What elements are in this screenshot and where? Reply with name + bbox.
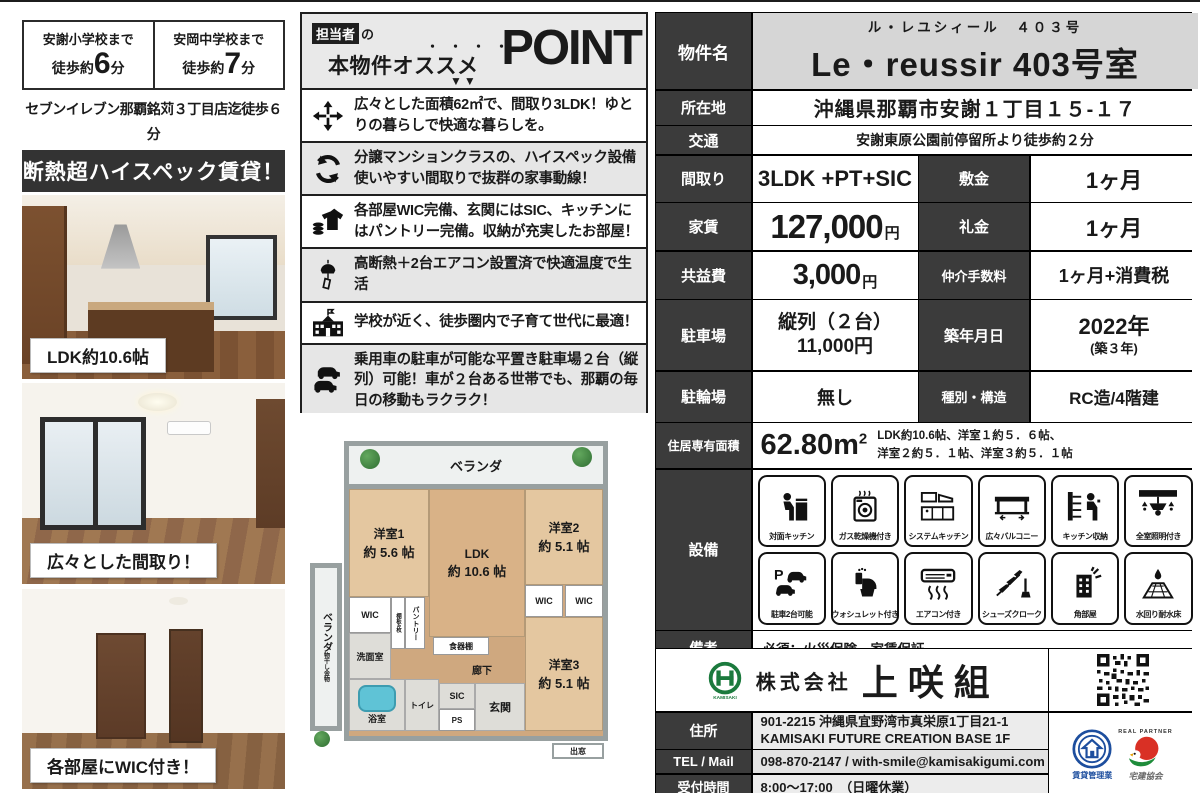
location-value: 沖縄県那覇市安謝１丁目１５-１７	[753, 91, 1198, 125]
rental-management-badge: 賃貸管理業	[1072, 729, 1112, 781]
row-label-common-fee: 共益費	[656, 252, 751, 299]
walk-suffix: 分	[241, 60, 255, 76]
school-name: 安謝小学校まで	[24, 29, 153, 48]
point-item: 乗用車の駐車が可能な平置き駐車場２台（縦列）可能！車が２台ある世帯でも、那覇の毎…	[302, 343, 646, 417]
floorplan-entrance: 玄関	[475, 683, 525, 731]
photo-caption: 各部屋にWIC付き！	[30, 748, 216, 783]
parking-two-icon: P	[773, 558, 811, 609]
deposit-value: 1ヶ月	[1031, 156, 1198, 202]
down-arrows-icon: ▼▼	[450, 74, 478, 88]
property-name-kana: ル・レユシィール ４０３号	[868, 16, 1083, 36]
walk-minutes: 6	[94, 47, 111, 80]
point-item: 分譲マンションクラスの、ハイスペック設備使いやすい間取りで抜群の家事動線！	[302, 141, 646, 194]
company-name-cell: KAMISAKI 株式会社 上咲組	[656, 649, 1048, 711]
balcony-icon	[993, 481, 1031, 532]
equipment-tile: ウォシュレット付き	[831, 552, 899, 625]
floorplan-veranda-top: ベランダ	[344, 441, 608, 489]
kitchen-storage-icon	[1066, 481, 1104, 532]
photo-ldk-kitchen: LDK約10.6帖	[22, 195, 285, 379]
area-room-breakdown: LDK約10.6帖、洋室１約５．６帖、洋室２約５．１帖、洋室３約５．１帖	[877, 428, 1073, 463]
plant-icon	[572, 447, 592, 467]
recommend-points-box: 担当者の ・・・・ 本物件オススメ POINT ▼▼ 広々とした面積62㎡で、間…	[300, 12, 648, 418]
floorplan-interior: 洋室1 約 5.6 帖 LDK 約 10.6 帖 洋室2 約 5.1 帖 WIC…	[344, 489, 608, 741]
corner-room-icon	[1066, 558, 1104, 609]
photo-living-room: 広々とした間取り！	[22, 383, 285, 584]
common-fee-amount: 3,000	[793, 259, 861, 292]
rent-unit: 円	[885, 222, 900, 243]
laundry-fitting-label: 物干し金物	[322, 652, 331, 682]
equipment-tile: キッチン収納	[1051, 475, 1119, 548]
point-text: 学校が近く、徒歩圏内で子育て世代に最適！	[354, 312, 638, 333]
equipment-tile: システムキッチン	[904, 475, 972, 548]
expand-arrows-icon	[309, 100, 347, 132]
rent-amount: 127,000	[770, 208, 882, 246]
row-label-layout: 間取り	[656, 156, 751, 202]
floorplan-room1: 洋室1 約 5.6 帖	[349, 489, 429, 597]
points-header: 担当者の ・・・・ 本物件オススメ POINT ▼▼	[302, 14, 646, 88]
row-label-equipment: 設備	[656, 470, 751, 630]
floorplan-room2: 洋室2 約 5.1 帖	[525, 489, 603, 585]
company-prefix: 株式会社	[756, 666, 852, 695]
floorplan-room3: 洋室3 約 5.1 帖	[525, 617, 603, 731]
equipment-grid: 対面キッチン ガス乾燥機付き システムキッチン 広々バルコニー キッチン収納 全…	[753, 470, 1198, 630]
point-text: 各部屋WIC完備、玄関にはSIC、キッチンにはパントリー完備。収納が充実したお部…	[354, 201, 639, 242]
particle: の	[361, 27, 374, 42]
row-label-parking: 駐車場	[656, 300, 751, 370]
point-item: 学校が近く、徒歩圏内で子育て世代に最適！	[302, 301, 646, 343]
floorplan-bath: 浴室	[349, 679, 405, 731]
company-footer: KAMISAKI 株式会社 上咲組 住所 901-2215 沖縄県宜野湾市真栄原…	[655, 648, 1192, 793]
two-cars-icon	[309, 363, 347, 397]
key-money-value: 1ヶ月	[1031, 203, 1198, 250]
svg-text:P: P	[774, 567, 784, 583]
equipment-tile: 広々バルコニー	[978, 475, 1046, 548]
point-item: 高断熱＋2台エアコン設置済で快適温度で生活	[302, 247, 646, 300]
layout-value: 3LDK +PT+SIC	[753, 156, 918, 202]
walk-minutes: 7	[224, 47, 241, 80]
row-label-property-name: 物件名	[656, 13, 751, 89]
row-label-area: 住居専有面積	[656, 423, 751, 468]
parking-line2: 11,000円	[797, 335, 873, 359]
point-text: 分譲マンションクラスの、ハイスペック設備使いやすい間取りで抜群の家事動線！	[354, 148, 639, 189]
rental-management-icon	[1072, 729, 1112, 769]
row-label-hours: 受付時間	[656, 775, 751, 793]
bicycle-value: 無し	[753, 372, 918, 422]
company-logo: KAMISAKI	[704, 659, 746, 701]
point-text: 広々とした面積62㎡で、間取り3LDK！ゆとりの暮らしで快適な暮らしを。	[354, 95, 639, 136]
company-tel-mail: 098-870-2147 / with-smile@kamisakigumi.c…	[753, 750, 1048, 773]
header-line-a: 本物件	[328, 55, 393, 78]
row-label-location: 所在地	[656, 91, 751, 125]
walk-prefix: 徒歩約	[182, 60, 224, 76]
counter-kitchen-icon	[773, 481, 811, 532]
floorplan-bay-window: 出窓	[552, 743, 604, 759]
equipment-tile: ガス乾燥機付き	[831, 475, 899, 548]
school-access-elementary: 安謝小学校まで 徒歩約6分	[24, 22, 155, 88]
property-name: Le・reussir 403号室	[811, 38, 1139, 86]
cycle-icon	[309, 154, 347, 184]
storage-clothes-icon	[309, 206, 347, 238]
floorplan-ps: PS	[439, 709, 475, 731]
floorplan-wic3: WIC	[565, 585, 603, 617]
company-address: 901-2215 沖縄県宜野湾市真栄原1丁目21-1 KAMISAKI FUTU…	[753, 713, 1048, 749]
row-label-agency-fee: 仲介手数料	[919, 252, 1029, 299]
equipment-tile: エアコン付き	[904, 552, 972, 625]
row-label-key-money: 礼金	[919, 203, 1029, 250]
headline-text: 断熱超ハイスペック賃貸！	[23, 156, 284, 186]
association-badges: 賃貸管理業 REAL PARTNER 宅建協会	[1049, 713, 1196, 793]
school-name: 安岡中学校まで	[155, 29, 284, 48]
floor-plan: ベランダ ベランダ 物干し金物 洋室1 約 5.6 帖 LDK 約 10.6 帖…	[300, 413, 648, 791]
svg-text:KAMISAKI: KAMISAKI	[713, 695, 737, 701]
row-label-rent: 家賃	[656, 203, 751, 250]
qr-cell	[1049, 649, 1196, 711]
area-value-cell: 62.80m2 LDK約10.6帖、洋室１約５．６帖、洋室２約５．１帖、洋室３約…	[753, 423, 1198, 468]
parking-line1: 縦列（２台）	[778, 311, 892, 335]
row-label-built: 築年月日	[919, 300, 1029, 370]
waterproof-floor-icon	[1139, 558, 1177, 609]
point-title: POINT	[501, 17, 641, 81]
store-line: セブンイレブン那覇銘苅３丁目店迄徒歩６分	[22, 97, 285, 146]
walk-suffix: 分	[111, 60, 125, 76]
point-text: 高断熱＋2台エアコン設置済で快適温度で生活	[354, 254, 639, 295]
photo-caption: LDK約10.6帖	[30, 338, 166, 373]
shoe-closet-icon	[993, 558, 1031, 609]
floorplan-toilet: トイレ	[405, 679, 439, 731]
row-label-address: 住所	[656, 713, 751, 749]
aircon-icon	[919, 558, 957, 609]
property-spec-table: 物件名 ル・レユシィール ４０３号 Le・reussir 403号室 所在地 沖…	[655, 12, 1192, 665]
equipment-tile: 水回り耐水床	[1124, 552, 1192, 625]
headline-banner: 断熱超ハイスペック賃貸！	[22, 150, 285, 192]
floorplan-sic: SIC	[439, 683, 475, 709]
top-border-rule	[0, 0, 1200, 2]
walk-prefix: 徒歩約	[52, 60, 94, 76]
floorplan-ldk: LDK 約 10.6 帖	[429, 489, 525, 637]
system-kitchen-icon	[919, 481, 957, 532]
parking-value-cell: 縦列（２台） 11,000円	[753, 300, 918, 370]
floorplan-pantry: パントリー	[405, 597, 425, 649]
equipment-tile: P駐車2台可能	[758, 552, 826, 625]
common-fee-unit: 円	[862, 271, 877, 292]
plant-icon	[314, 731, 330, 747]
school-access-junior-high: 安岡中学校まで 徒歩約7分	[155, 22, 284, 88]
bathtub-icon	[358, 685, 396, 713]
photo-caption: 広々とした間取り！	[30, 543, 217, 578]
floorplan-hall: 廊下	[439, 655, 525, 683]
row-label-structure: 種別・構造	[919, 372, 1029, 422]
washlet-icon	[846, 558, 884, 609]
floorplan-washroom: 洗面室	[349, 633, 391, 679]
lighting-icon	[1139, 481, 1177, 532]
photo-bedroom-wic: 各部屋にWIC付き！	[22, 589, 285, 789]
qr-code	[1097, 654, 1149, 706]
takken-association-badge: REAL PARTNER 宅建協会	[1118, 729, 1173, 782]
point-text: 乗用車の駐車が可能な平置き駐車場２台（縦列）可能！車が２台ある世帯でも、那覇の毎…	[354, 350, 639, 412]
point-item: 広々とした面積62㎡で、間取り3LDK！ゆとりの暮らしで快適な暮らしを。	[302, 88, 646, 141]
common-fee-cell: 3,000円	[753, 252, 918, 299]
property-flyer: 安謝小学校まで 徒歩約6分 安岡中学校まで 徒歩約7分 セブンイレブン那覇銘苅３…	[0, 0, 1200, 793]
built-age: (築３年)	[1090, 341, 1138, 357]
agency-fee-value: 1ヶ月+消費税	[1031, 252, 1198, 299]
floorplan-wic2: WIC	[525, 585, 563, 617]
gas-dryer-icon	[846, 481, 884, 532]
company-hours: 8:00～17:00 （日曜休業）	[753, 775, 1048, 793]
property-name-cell: ル・レユシィール ４０３号 Le・reussir 403号室	[753, 13, 1198, 89]
takken-association-icon	[1125, 735, 1165, 769]
built-year: 2022年	[1079, 313, 1150, 341]
rent-value-cell: 127,000円	[753, 203, 918, 250]
row-label-bicycle: 駐輪場	[656, 372, 751, 422]
school-access-box: 安謝小学校まで 徒歩約6分 安岡中学校まで 徒歩約7分	[22, 20, 285, 90]
address-line2: KAMISAKI FUTURE CREATION BASE 1F	[761, 730, 1011, 748]
row-label-transport: 交通	[656, 126, 751, 154]
school-icon	[309, 308, 347, 338]
floorplan-wic1: WIC	[349, 597, 391, 633]
area-size: 62.80m2	[761, 429, 868, 462]
built-value-cell: 2022年 (築３年)	[1031, 300, 1198, 370]
company-name: 上咲組	[862, 654, 1000, 706]
staff-tag: 担当者	[312, 23, 359, 44]
floorplan-dish-shelf: 食器棚	[433, 637, 489, 655]
row-label-deposit: 敷金	[919, 156, 1029, 202]
transport-value: 安謝東原公園前停留所より徒歩約２分	[753, 126, 1198, 154]
equipment-tile: 対面キッチン	[758, 475, 826, 548]
equipment-tile: 全室照明付き	[1124, 475, 1192, 548]
plant-icon	[360, 449, 380, 469]
address-line1: 901-2215 沖縄県宜野湾市真栄原1丁目21-1	[761, 713, 1009, 731]
windchime-icon	[309, 258, 347, 292]
structure-value: RC造/4階建	[1031, 372, 1198, 422]
floorplan-veranda-left: ベランダ 物干し金物	[310, 563, 342, 731]
point-item: 各部屋WIC完備、玄関にはSIC、キッチンにはパントリー完備。収納が充実したお部…	[302, 194, 646, 247]
row-label-tel-mail: TEL / Mail	[656, 750, 751, 773]
floorplan-shelf: 棚板4枚	[391, 597, 405, 649]
equipment-tile: シューズクローク	[978, 552, 1046, 625]
equipment-tile: 角部屋	[1051, 552, 1119, 625]
